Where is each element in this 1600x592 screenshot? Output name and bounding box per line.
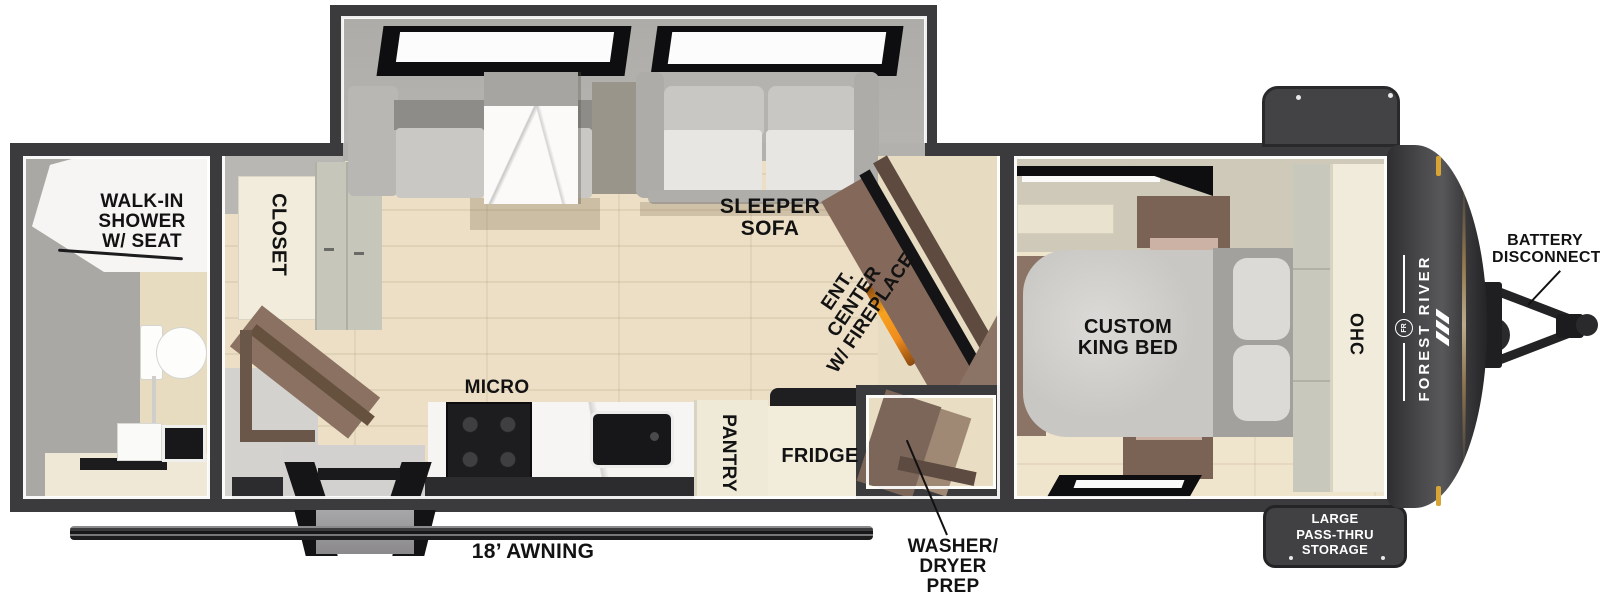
battery-disconnect-label: BATTERY DISCONNECT xyxy=(1492,233,1598,267)
label-line: PREP xyxy=(893,577,1013,592)
floorplan-stage: LARGE PASS-THRU STORAGE FR FOREST RIVER xyxy=(0,0,1600,592)
entry-threshold xyxy=(318,468,400,480)
closet-label: CLOSET xyxy=(267,175,288,295)
sleeper-sofa-label: SLEEPER SOFA xyxy=(690,196,850,241)
label-line: LARGE xyxy=(1263,511,1407,527)
logo-rule-row: FR xyxy=(1395,255,1413,401)
wardrobe-seam-1 xyxy=(1293,268,1330,270)
vanity-cabinet xyxy=(117,423,162,461)
sofa-seat-cushion-right xyxy=(766,130,858,192)
nightstand-top-drawer xyxy=(1150,238,1218,250)
main-bottom-wall xyxy=(10,499,1395,512)
wardrobe-seam-2 xyxy=(1293,380,1330,382)
mid-shadow xyxy=(592,82,638,194)
bedroom-overhead-cabinet xyxy=(1017,204,1114,234)
label-line: W/ SEAT xyxy=(72,232,212,252)
living-bedroom-wall xyxy=(1000,156,1014,499)
desk-frame-vertical xyxy=(240,330,252,442)
desk-frame-horizontal xyxy=(240,430,315,442)
slide-window-right-glass xyxy=(668,32,886,64)
pantry-label: PANTRY xyxy=(718,398,738,508)
faucet-icon xyxy=(650,432,659,441)
cap-highlight xyxy=(1462,175,1466,475)
front-storage-top xyxy=(1262,86,1400,147)
label-line: PASS-THRU xyxy=(1263,527,1407,543)
label-line: DISCONNECT xyxy=(1492,250,1598,267)
battery-pointer-line xyxy=(1527,270,1561,306)
label-line: CUSTOM xyxy=(1048,317,1208,338)
logo-rule xyxy=(1403,255,1405,313)
brand-logo: FR FOREST RIVER xyxy=(1393,213,1451,443)
bedroom-wardrobe-strip xyxy=(1293,164,1330,492)
label-line: WALK-IN xyxy=(72,192,212,212)
bedroom-window-bottom-glass xyxy=(1074,480,1185,488)
hitch-ball-icon xyxy=(1576,314,1598,336)
label-line: DRYER xyxy=(893,557,1013,577)
kitchen-sink-icon xyxy=(590,411,674,468)
slide-window-left-glass xyxy=(396,32,614,62)
logo-rule xyxy=(1403,343,1405,401)
dinette-armrest xyxy=(348,86,398,196)
micro-label: MICRO xyxy=(437,378,557,398)
ohc-label: OHC xyxy=(1346,285,1365,385)
marker-light-icon xyxy=(1436,156,1441,176)
toilet-bowl-icon xyxy=(156,327,207,379)
marker-light-icon-2 xyxy=(1436,486,1441,506)
shower-label: WALK-IN SHOWER W/ SEAT xyxy=(72,192,212,252)
brand-emblem-icon: FR xyxy=(1395,319,1413,337)
washer-dryer-label: WASHER/ DRYER PREP xyxy=(893,537,1013,592)
pillow-icon xyxy=(1233,258,1290,340)
storage-rivet-icon-2 xyxy=(1388,93,1393,98)
dinette-table-shade xyxy=(484,72,578,106)
main-rear-wall xyxy=(10,143,23,512)
label-line: WASHER/ xyxy=(893,537,1013,557)
label-line: KING BED xyxy=(1048,338,1208,359)
awning-label: 18’ AWNING xyxy=(433,541,633,563)
pillow-icon-2 xyxy=(1233,345,1290,421)
sofa-armrest-left xyxy=(636,72,664,198)
wardrobe-handle-icon xyxy=(324,248,334,251)
wardrobe-handle-icon-2 xyxy=(354,252,364,255)
brand-name: FOREST RIVER xyxy=(1416,255,1433,402)
bedroom-window-top-glass xyxy=(1022,176,1160,182)
storage-rivet-icon-3 xyxy=(1289,556,1293,560)
label-line: SLEEPER xyxy=(690,196,850,218)
awning-bar xyxy=(70,526,873,540)
pass-thru-storage-label: LARGE PASS-THRU STORAGE xyxy=(1263,511,1407,558)
storage-rivet-icon-4 xyxy=(1381,556,1385,560)
storage-rivet-icon xyxy=(1296,95,1301,100)
sofa-seat-cushion-left xyxy=(662,130,762,192)
king-bed-label: CUSTOM KING BED xyxy=(1048,317,1208,359)
stove-icon xyxy=(446,402,532,482)
bathroom-sink-icon xyxy=(162,425,206,462)
brand-stripes-icon xyxy=(1436,314,1449,343)
dinette-bench-left xyxy=(396,128,484,198)
fridge-label: FRIDGE xyxy=(760,446,880,467)
label-line: SOFA xyxy=(690,218,850,240)
label-line: SHOWER xyxy=(72,212,212,232)
label-line: STORAGE xyxy=(1263,542,1407,558)
label-line: BATTERY xyxy=(1492,233,1598,250)
